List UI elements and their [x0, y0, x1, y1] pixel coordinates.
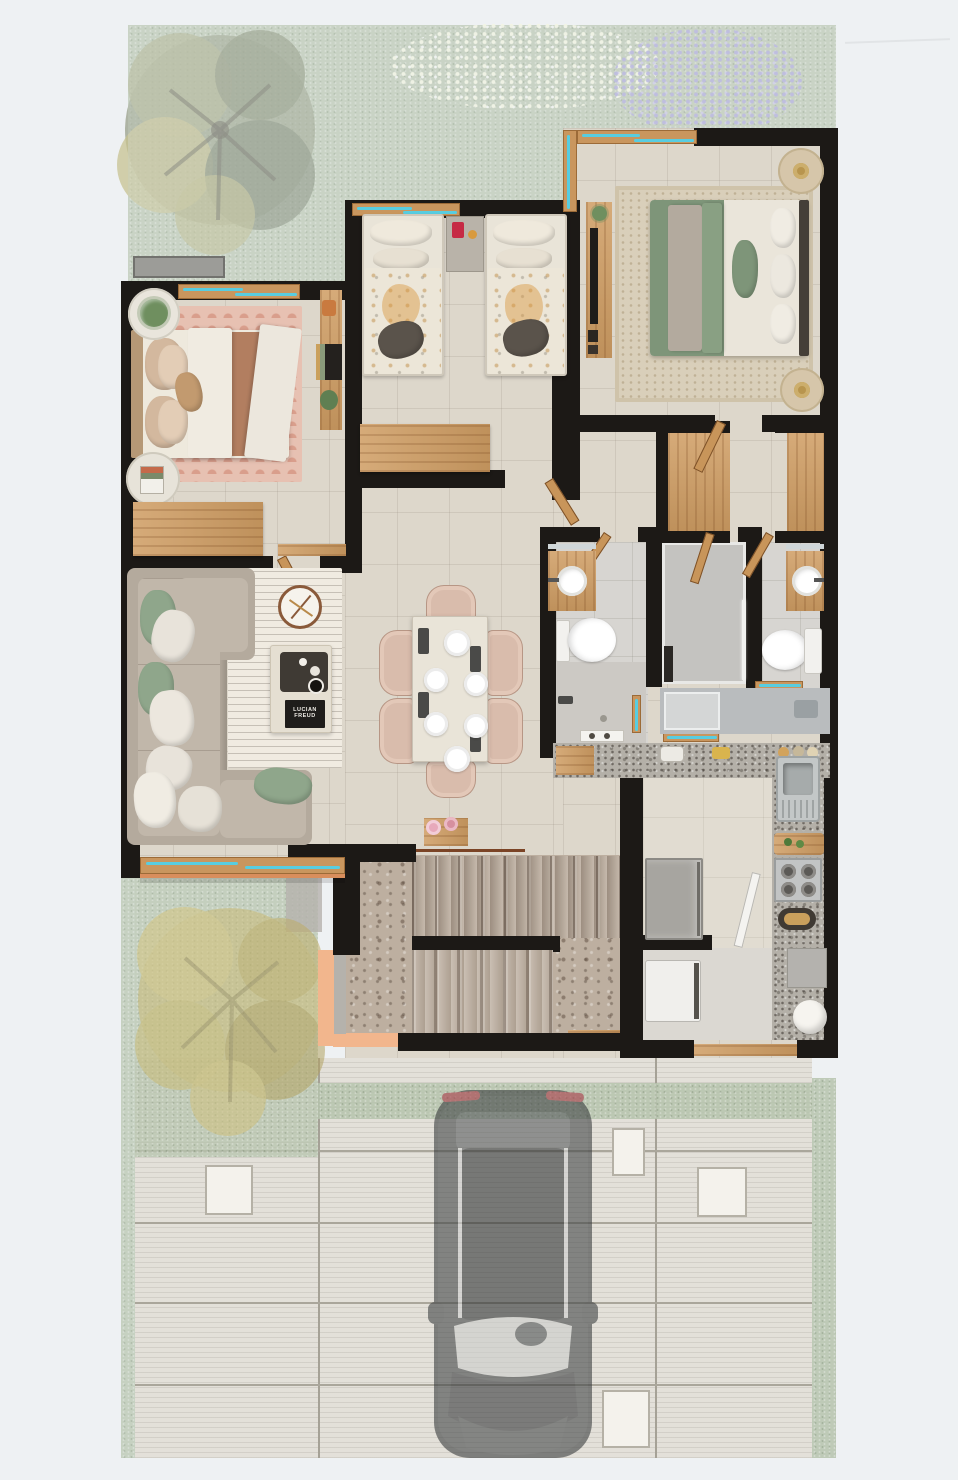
bathA-shower-head: [558, 696, 573, 704]
stair-lower-flight: [412, 950, 553, 1034]
window-glass: [634, 139, 694, 142]
stove-burner-3: [781, 882, 796, 897]
stair-upper-flight: [412, 856, 620, 938]
floor-plan-render: LUCIAN FREUD: [0, 0, 958, 1480]
closet-frame-left-side: [656, 421, 668, 543]
closet-frame-left-bottom: [656, 531, 730, 543]
wall-entry-south-left: [640, 1040, 694, 1058]
guest-shelf-plant: [320, 390, 338, 410]
guest-plant: [140, 299, 168, 327]
car-svg: [428, 1086, 598, 1462]
bathA-basin: [557, 566, 587, 596]
window-glass: [667, 736, 717, 739]
wall-bathA-north-a: [540, 527, 600, 542]
window-glass: [357, 207, 412, 210]
wall-shadow-south: [140, 878, 345, 883]
window-service-2: [632, 695, 641, 733]
console-flower-2: [444, 817, 458, 831]
washer-detail: [694, 963, 699, 1019]
garden-doormat: [133, 256, 225, 278]
tray-cup-2: [310, 666, 320, 676]
window-glass: [245, 866, 340, 869]
window-glass: [235, 293, 297, 296]
kids-candle: [468, 230, 477, 239]
kitchen-bread-tray: [778, 908, 816, 930]
bathB-toilet-bowl: [762, 630, 808, 670]
entry-planter-pot: [793, 1000, 827, 1034]
kitchen-white-pot: [660, 746, 684, 762]
kitchen-sink: [776, 756, 820, 822]
stair-gray-ledge: [334, 952, 346, 1034]
art-book-title: LUCIAN FREUD: [285, 700, 325, 719]
master-lamp-top: [793, 163, 809, 179]
window-glass: [183, 288, 243, 291]
master-duvet-fold: [702, 203, 722, 353]
wall-kids-west: [345, 200, 362, 560]
closet-frame-right-top: [775, 421, 836, 433]
car: [428, 1086, 598, 1462]
placemat-2: [470, 646, 481, 672]
paver-2: [612, 1128, 645, 1176]
wall-kitchen-stair: [620, 757, 643, 1058]
window-glass: [759, 684, 801, 687]
entry-threshold: [694, 1044, 797, 1056]
plate-bottom: [444, 746, 470, 772]
plate-right-1: [464, 672, 488, 696]
window-glass: [635, 699, 638, 731]
bathB-mirror: [786, 544, 824, 549]
tray-cup-dark: [310, 680, 322, 692]
wardrobe-left: [668, 433, 730, 531]
kitchen-sink-basin: [783, 763, 813, 795]
kitchen-fridge: [645, 858, 703, 940]
east-grass-strip: [812, 1078, 836, 1458]
tray-cup-1: [299, 658, 307, 666]
kids-pillow-r2: [496, 248, 552, 270]
showerroom-glass-door: [742, 600, 745, 680]
master-tv: [590, 228, 598, 324]
stove-burner-1: [781, 864, 796, 879]
master-lamp-bottom: [794, 382, 810, 398]
master-pillow-sage: [732, 240, 758, 298]
south-yellow-tree: [120, 880, 350, 1150]
window-glass: [582, 134, 640, 137]
window-guest-north: [178, 284, 300, 299]
master-pillow-white-1: [770, 208, 796, 248]
kitchen-wood-board: [556, 746, 594, 775]
peach-edge-vertical: [318, 950, 334, 1046]
sofa-pillow-white-5: [178, 786, 222, 832]
wall-living-south-corner: [121, 855, 140, 878]
stove-burner-2: [801, 864, 816, 879]
wall-master-north: [694, 128, 836, 146]
hall-vanity-strip: [580, 730, 624, 742]
service-panel: [664, 692, 720, 730]
master-pillow-white-2: [770, 254, 796, 298]
window-master-north: [577, 130, 697, 144]
kids-desk: [360, 424, 490, 472]
window-living-south: [140, 857, 345, 874]
kitchen-stove: [774, 858, 822, 902]
paver-3: [697, 1167, 747, 1217]
dining-chair-right-2: [485, 698, 523, 764]
master-headboard: [799, 200, 809, 356]
cutting-board-veg-1: [784, 838, 792, 846]
kids-pillow-r1: [493, 220, 555, 246]
service-object: [794, 700, 818, 718]
master-frames-2: [588, 345, 598, 354]
bathA-toilet-bowl: [568, 618, 616, 662]
hall-vanity-tap-2: [604, 733, 610, 739]
showerroom-fixture: [664, 646, 673, 682]
closet-frame-right-bottom: [775, 531, 836, 543]
window-service-3: [663, 733, 719, 742]
guest-console-shelf: [278, 544, 346, 556]
master-pillow-white-3: [770, 304, 796, 344]
window-master-west: [563, 130, 577, 212]
guest-desk: [133, 502, 263, 556]
placemat-1: [418, 628, 429, 654]
living-decor-clock: [278, 585, 322, 629]
wall-stair-south: [398, 1033, 640, 1051]
paver-1: [205, 1165, 253, 1215]
guest-shelf-books: [316, 344, 342, 380]
plate-right-2: [464, 714, 488, 738]
guest-shelf-pot: [322, 300, 336, 316]
guest-headboard: [131, 330, 143, 458]
entry-doormat: [787, 948, 827, 988]
guest-books: [140, 466, 164, 494]
bread: [784, 913, 810, 925]
fridge-handle: [697, 862, 700, 936]
bathA-tap: [548, 578, 559, 582]
bathA-mirror: [548, 544, 596, 549]
plate-left-2: [424, 712, 448, 736]
wall-entry-south-right: [797, 1040, 836, 1058]
bathB-tap: [814, 578, 824, 582]
master-plant: [592, 206, 607, 221]
hall-vanity-tap-1: [589, 733, 595, 739]
plate-top: [444, 630, 470, 656]
console-flower-1: [426, 820, 441, 835]
wall-shower-west: [646, 527, 662, 687]
kids-pillow-l2: [373, 248, 429, 270]
cutting-board-veg-2: [796, 840, 804, 848]
stove-burner-4: [801, 882, 816, 897]
window-glass: [567, 135, 570, 209]
dining-chair-right-1: [485, 630, 523, 696]
kitchen-butter-dish: [712, 747, 730, 759]
top-smudge-mark: [845, 38, 950, 44]
paver-4: [602, 1390, 650, 1448]
art-book: LUCIAN FREUD: [285, 700, 325, 728]
window-glass: [146, 862, 238, 865]
bathA-drain: [600, 715, 607, 722]
plate-left-1: [424, 668, 448, 692]
bathB-toilet-tank: [804, 628, 822, 674]
kids-pillow-l1: [370, 220, 432, 246]
master-frames: [588, 330, 598, 342]
entry-washer: [645, 960, 701, 1022]
wardrobe-right: [787, 433, 824, 531]
master-blanket-gray: [668, 205, 702, 351]
wall-kids-south-left: [345, 470, 505, 488]
kitchen-sink-drainboard: [782, 800, 816, 818]
kids-red-lamp: [452, 222, 464, 238]
